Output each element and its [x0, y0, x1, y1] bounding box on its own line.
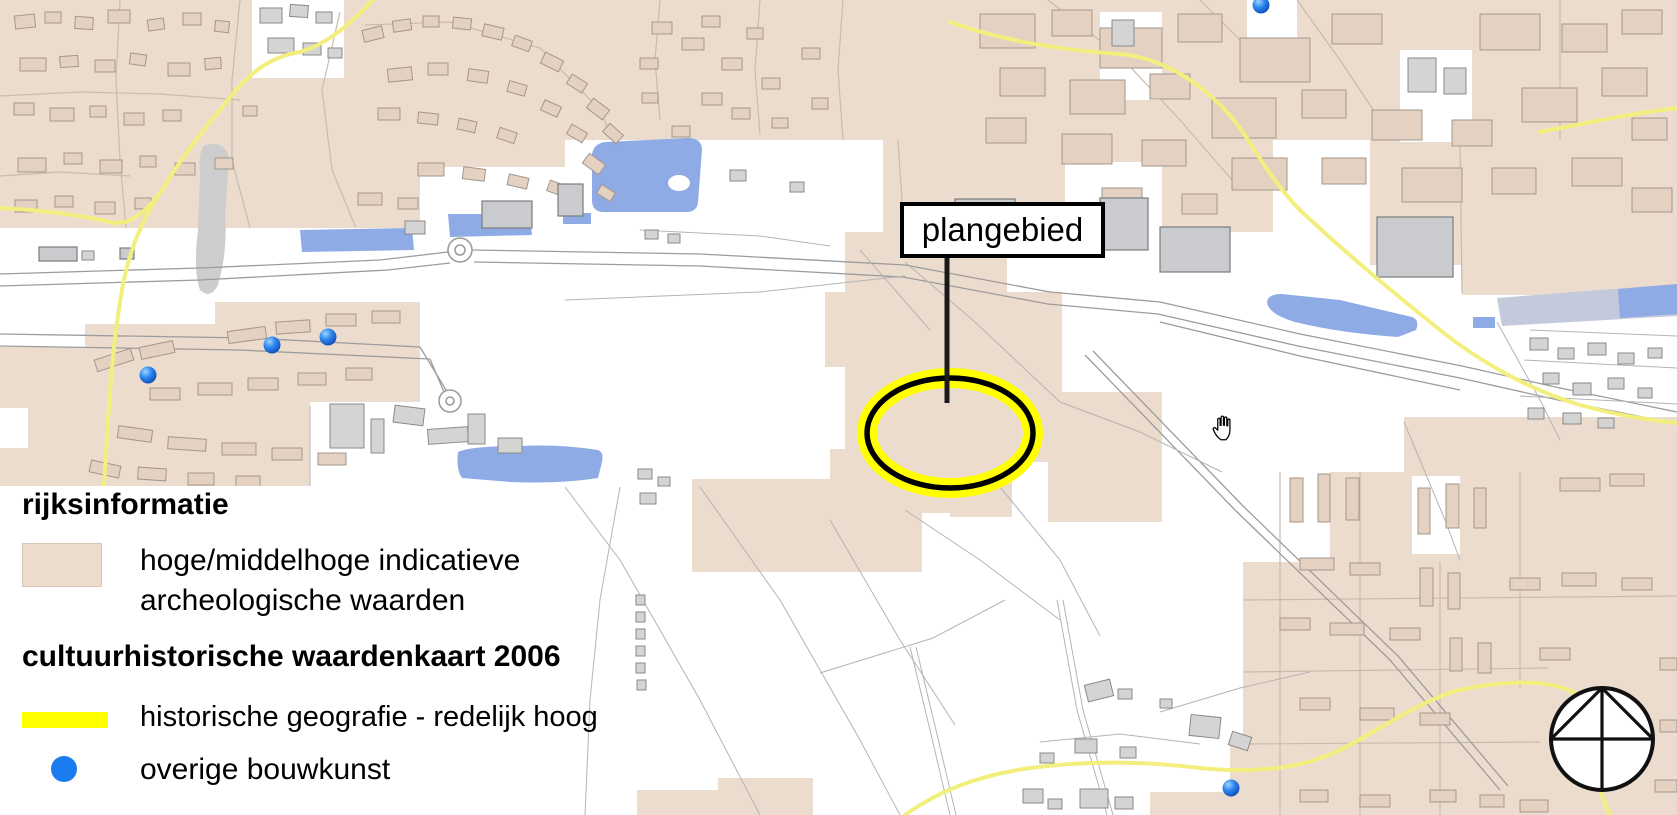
- legend-section-rijksinformatie: rijksinformatie: [22, 488, 229, 522]
- compass-icon: [1551, 688, 1653, 790]
- plangebied-label: plangebied: [900, 202, 1105, 258]
- bouwkunst-point: [320, 329, 337, 346]
- legend-item-overige-bouwkunst: overige bouwkunst: [140, 753, 390, 787]
- archaeology-swatch: [22, 543, 102, 587]
- bouwkunst-point: [1223, 780, 1240, 797]
- bouwkunst-dot-swatch: [51, 756, 77, 782]
- legend-item-historische-geografie: historische geografie - redelijk hoog: [140, 701, 598, 734]
- legend-section-waardenkaart-2006: cultuurhistorische waardenkaart 2006: [22, 640, 561, 674]
- historic-geography-line-swatch: [22, 712, 108, 728]
- bouwkunst-point: [264, 337, 281, 354]
- legend-panel: rijksinformatie hoge/middelhoge indicati…: [0, 486, 565, 815]
- hand-cursor-icon: [1213, 416, 1230, 440]
- legend-item-archeologische-waarden: hoge/middelhoge indicatieve archeologisc…: [140, 541, 520, 621]
- map-viewport[interactable]: plangebied rijksinformatie hoge/middelho…: [0, 0, 1677, 815]
- bouwkunst-point: [140, 367, 157, 384]
